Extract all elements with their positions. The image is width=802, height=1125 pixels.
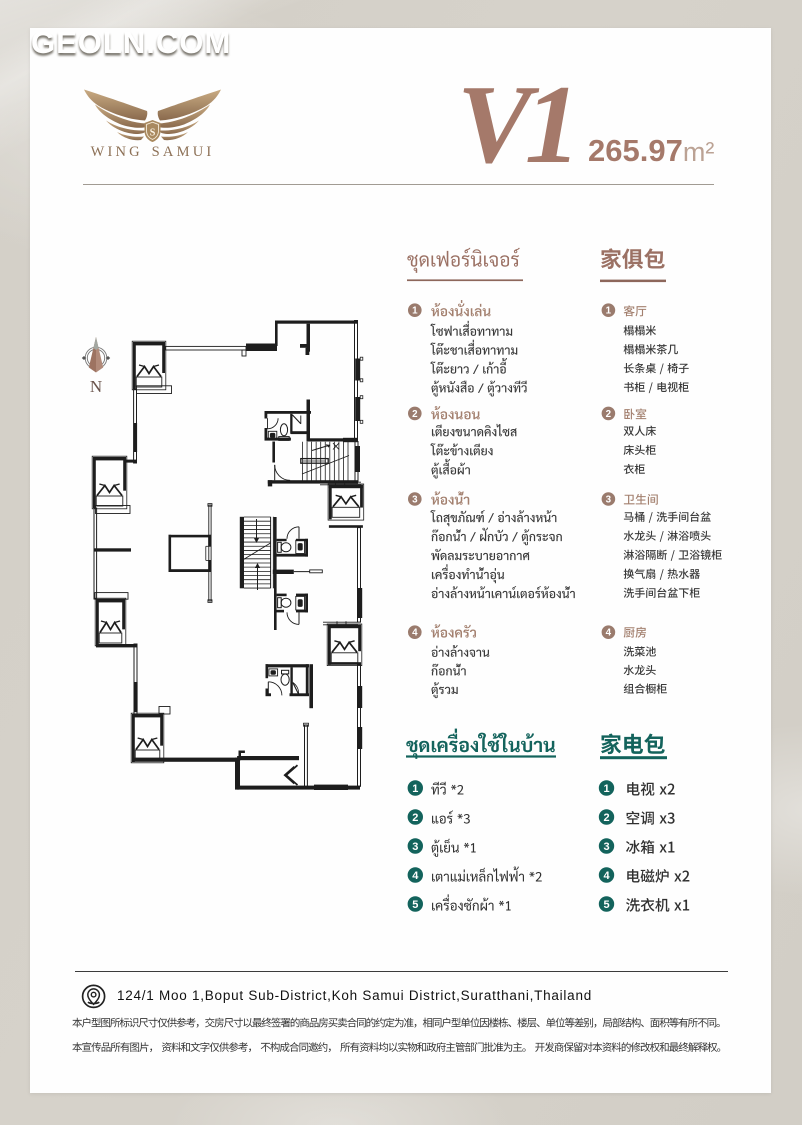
svg-text:3: 3 bbox=[603, 841, 609, 853]
svg-text:1: 1 bbox=[412, 783, 418, 795]
svg-text:4: 4 bbox=[603, 870, 610, 882]
svg-text:4: 4 bbox=[412, 870, 419, 882]
svg-text:3: 3 bbox=[606, 495, 612, 506]
svg-text:5: 5 bbox=[603, 899, 609, 911]
svg-text:2: 2 bbox=[606, 409, 612, 420]
svg-text:2: 2 bbox=[412, 812, 418, 824]
svg-text:2: 2 bbox=[603, 812, 609, 824]
svg-text:3: 3 bbox=[412, 841, 418, 853]
svg-text:5: 5 bbox=[412, 899, 418, 911]
svg-text:1: 1 bbox=[412, 306, 418, 317]
svg-text:4: 4 bbox=[412, 628, 418, 639]
svg-text:1: 1 bbox=[606, 306, 612, 317]
svg-text:4: 4 bbox=[606, 628, 612, 639]
svg-text:3: 3 bbox=[412, 495, 418, 506]
svg-text:2: 2 bbox=[412, 409, 418, 420]
svg-text:1: 1 bbox=[603, 783, 609, 795]
